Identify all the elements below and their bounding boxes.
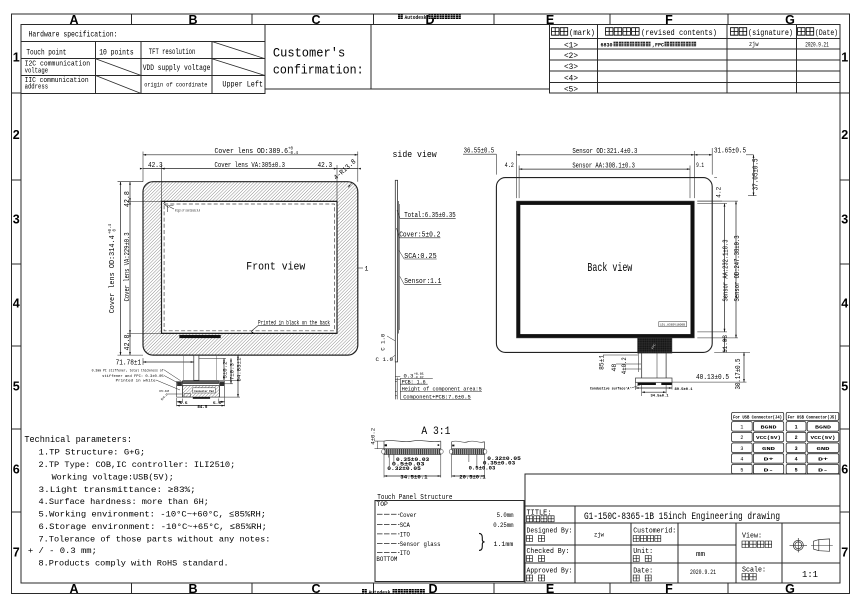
svg-text:2: 2 (13, 128, 20, 142)
svg-text:(mark): (mark) (569, 28, 595, 38)
svg-text:Printed in white: Printed in white (116, 378, 157, 383)
svg-text:30.17±0.5: 30.17±0.5 (735, 359, 743, 390)
svg-text:origin of coordinate: origin of coordinate (144, 81, 207, 89)
svg-text:71.78±1: 71.78±1 (116, 360, 142, 368)
svg-text:C: C (311, 582, 320, 596)
svg-text:2: 2 (740, 435, 743, 441)
svg-text:G: G (785, 582, 795, 596)
svg-text:<3>: <3> (564, 62, 578, 72)
svg-text:89.5±0.1: 89.5±0.1 (675, 388, 694, 392)
svg-text:VDD supply voltage: VDD supply voltage (143, 65, 211, 73)
svg-text:Cover lens VA:229±0.3: Cover lens VA:229±0.3 (124, 232, 132, 301)
svg-text:(signature): (signature) (748, 28, 793, 38)
svg-text:GND: GND (817, 447, 831, 452)
svg-text:-0.4: -0.4 (288, 152, 299, 156)
svg-text:3.Light transmittance: ≥83%;: 3.Light transmittance: ≥83%; (39, 485, 196, 495)
svg-text:Cover lens VA:305±0.3: Cover lens VA:305±0.3 (215, 162, 286, 170)
svg-text:zjw: zjw (749, 41, 759, 48)
svg-text:Conductive surface'A': Conductive surface'A' (590, 387, 632, 392)
svg-text:0.5±0.03: 0.5±0.03 (469, 465, 496, 471)
svg-text:Autodesk: Autodesk (405, 15, 428, 21)
svg-text:1: 1 (13, 50, 20, 64)
svg-text:5: 5 (795, 467, 798, 473)
svg-text:Sensor:1.1: Sensor:1.1 (404, 278, 441, 286)
svg-text:Customerid:: Customerid: (633, 527, 676, 535)
svg-text:BOTTOM: BOTTOM (376, 556, 397, 563)
svg-text:34.5±0.1: 34.5±0.1 (400, 474, 427, 480)
svg-text:0.3mm PI stiffener, total thic: 0.3mm PI stiffener, total thickness of (92, 368, 165, 373)
svg-text:<1>: <1> (564, 40, 578, 50)
svg-text:5.0mm: 5.0mm (497, 512, 514, 519)
svg-text:5±0.2: 5±0.2 (222, 362, 229, 379)
svg-text:<2>: <2> (564, 51, 578, 61)
svg-text:8.Products comply with RoHS st: 8.Products comply with RoHS standard. (39, 559, 229, 569)
svg-text:4±0.2: 4±0.2 (370, 428, 377, 445)
svg-text:Connector Pad: Connector Pad (194, 389, 214, 393)
svg-text:ITO: ITO (400, 532, 410, 539)
svg-text:side view: side view (393, 149, 437, 160)
svg-text:1: 1 (795, 425, 798, 431)
svg-text:Autodesk: Autodesk (369, 590, 392, 596)
svg-text:Approved By:: Approved By: (527, 568, 573, 576)
svg-text:Hardware specification:: Hardware specification: (29, 30, 118, 40)
svg-text:Working voltage:USB(5V);: Working voltage:USB(5V); (52, 472, 174, 482)
svg-text:9.1: 9.1 (696, 162, 704, 169)
svg-text:4±0.2: 4±0.2 (621, 357, 628, 374)
svg-text:4.2: 4.2 (505, 162, 514, 169)
svg-text:Customer's: Customer's (273, 46, 345, 61)
svg-text:Technical parameters:: Technical parameters: (24, 435, 132, 445)
svg-text:<5>: <5> (564, 84, 578, 94)
svg-text:D: D (428, 582, 437, 596)
svg-text:34.5±0.1: 34.5±0.1 (651, 394, 670, 398)
svg-text:Cover lens OD:314.4: Cover lens OD:314.4 (109, 235, 117, 313)
svg-text:3: 3 (841, 212, 848, 226)
svg-text:zjw: zjw (594, 532, 604, 539)
svg-text:D-: D- (818, 468, 828, 473)
svg-text:For USB Connector(J4): For USB Connector(J4) (733, 415, 782, 420)
svg-text:TFT resolution: TFT resolution (149, 48, 196, 57)
svg-text:0: 0 (114, 228, 118, 234)
svg-text:Upper Left: Upper Left (222, 79, 263, 89)
svg-text:F: F (665, 582, 673, 596)
svg-text:,FPC: ,FPC (652, 42, 664, 48)
svg-text:Sensor OD:247.38±0.3: Sensor OD:247.38±0.3 (734, 236, 742, 302)
svg-text:31.65±0.5: 31.65±0.5 (714, 148, 746, 156)
svg-text:A 3:1: A 3:1 (421, 426, 450, 438)
svg-text:4.Surface hardness: more than: 4.Surface hardness: more than 6H; (39, 497, 209, 507)
svg-text:4: 4 (795, 457, 798, 463)
svg-text:Unit:: Unit: (633, 548, 653, 556)
svg-text:7: 7 (13, 545, 20, 559)
svg-text:VCC(5V): VCC(5V) (756, 436, 781, 441)
svg-text:Back view: Back view (587, 261, 632, 275)
svg-text:1: 1 (740, 425, 743, 431)
svg-text:5.Working environment: -10°C~+: 5.Working environment: -10°C~+60°C, ≤85%… (39, 510, 267, 520)
svg-text:G1-150C-8365-1B 15inch Enginee: G1-150C-8365-1B 15inch Engineering drawi… (584, 511, 780, 523)
svg-text:B: B (188, 582, 197, 596)
svg-text:5: 5 (841, 379, 848, 393)
svg-text:42.3: 42.3 (148, 162, 163, 170)
svg-text:TOP: TOP (376, 501, 388, 508)
svg-text:6: 6 (841, 462, 848, 476)
svg-text:Front view: Front view (246, 261, 305, 273)
svg-text:2: 2 (795, 435, 798, 441)
svg-text:D+: D+ (818, 458, 829, 463)
svg-text:40.13±0.5: 40.13±0.5 (696, 374, 729, 382)
svg-text:4: 4 (13, 296, 20, 310)
svg-text:D+: D+ (764, 458, 775, 463)
svg-text:VCC(5V): VCC(5V) (811, 436, 836, 441)
svg-text:2.TP Type: COB,IC controller:: 2.TP Type: COB,IC controller: ILI2510; (39, 460, 236, 470)
svg-text:6830: 6830 (601, 42, 616, 48)
svg-text:Sensor AA:232.1±0.3: Sensor AA:232.1±0.3 (723, 240, 731, 302)
svg-text:C 1.0: C 1.0 (376, 356, 394, 363)
svg-text:Sensor glass: Sensor glass (400, 541, 441, 548)
svg-text:84.5: 84.5 (197, 406, 207, 410)
svg-text:Total:6.35±0.35: Total:6.35±0.35 (404, 212, 456, 220)
svg-text:5: 5 (740, 467, 743, 473)
svg-text:0rigin of coordinate:0,0: 0rigin of coordinate:0,0 (175, 209, 200, 214)
svg-text:4: 4 (841, 296, 848, 310)
svg-text:6: 6 (13, 462, 20, 476)
svg-text:For USB Connector(J5): For USB Connector(J5) (788, 415, 837, 420)
svg-text:BGND: BGND (815, 426, 832, 431)
svg-text:6.Storage environment: -10°C~+: 6.Storage environment: -10°C~+65°C, ≤85%… (39, 522, 268, 532)
svg-text:Cover:5±0.2: Cover:5±0.2 (399, 232, 440, 240)
svg-text:FPC-60P: FPC-60P (159, 390, 169, 393)
svg-text:BGND: BGND (761, 426, 778, 431)
svg-text:(Date): (Date) (815, 28, 838, 38)
svg-text:Cover lens OD:389.6: Cover lens OD:389.6 (215, 148, 289, 156)
svg-text:15L.8365V1600B: 15L.8365V1600B (660, 324, 685, 327)
svg-text:PCB: 1.6: PCB: 1.6 (402, 379, 426, 385)
svg-text:GND: GND (762, 447, 776, 452)
svg-text:(revised contents): (revised contents) (641, 28, 717, 38)
svg-text:<4>: <4> (564, 73, 578, 83)
svg-text:2020.9.21: 2020.9.21 (805, 42, 829, 49)
svg-text:mm: mm (696, 551, 705, 559)
svg-text:SCA:0.25: SCA:0.25 (404, 253, 437, 261)
svg-text:D-: D- (764, 468, 774, 473)
svg-text:3: 3 (13, 212, 20, 226)
svg-text:5: 5 (13, 379, 20, 393)
svg-text:Sensor OD:321.4±0.3: Sensor OD:321.4±0.3 (572, 148, 637, 156)
svg-text:1:1: 1:1 (802, 570, 818, 580)
svg-text:10 points: 10 points (99, 47, 134, 57)
svg-text:Sensor AA:308.1±0.3: Sensor AA:308.1±0.3 (572, 163, 635, 171)
svg-text:42.8: 42.8 (124, 335, 132, 351)
svg-text:0.25mm: 0.25mm (493, 522, 513, 529)
svg-text:ITO: ITO (400, 550, 410, 557)
svg-text:+0.4: +0.4 (109, 223, 113, 234)
svg-text:voltage: voltage (25, 67, 49, 75)
svg-text:4: 4 (740, 457, 743, 463)
svg-text:7: 7 (841, 545, 848, 559)
svg-text:confirmation:: confirmation: (273, 63, 364, 78)
svg-text:54.83±1: 54.83±1 (236, 357, 243, 382)
svg-text:7±0.3: 7±0.3 (229, 363, 236, 380)
svg-text:42.8: 42.8 (124, 191, 132, 207)
svg-text:11.08: 11.08 (722, 335, 729, 353)
svg-text:3: 3 (740, 446, 743, 452)
svg-text:Cover: Cover (400, 512, 417, 519)
svg-text:1: 1 (841, 50, 848, 64)
svg-text:48: 48 (611, 363, 618, 371)
svg-text:0.32±0.05: 0.32±0.05 (387, 466, 421, 472)
svg-text:4.2: 4.2 (716, 187, 723, 198)
svg-text:Touch point: Touch point (26, 47, 66, 57)
svg-text:+ / - 0.3 mm;: + / - 0.3 mm; (28, 546, 97, 556)
svg-text:Checked By:: Checked By: (527, 548, 570, 556)
svg-text:SCA: SCA (400, 522, 410, 529)
svg-text:View:: View: (742, 533, 762, 541)
svg-text:7.Tolerance of those parts wit: 7.Tolerance of those parts without any n… (39, 534, 271, 544)
svg-text:address: address (25, 84, 48, 92)
svg-text:2020.9.21: 2020.9.21 (690, 569, 716, 576)
svg-text:1.TP Structure: G+G;: 1.TP Structure: G+G; (39, 448, 146, 458)
svg-text:1.1mm: 1.1mm (494, 541, 514, 548)
svg-text:E: E (546, 582, 554, 596)
svg-text:1: 1 (365, 266, 369, 273)
svg-text:Date:: Date: (633, 568, 653, 576)
svg-text:85±1: 85±1 (598, 354, 605, 369)
svg-text:3: 3 (795, 446, 798, 452)
svg-text:Designed By:: Designed By: (527, 527, 573, 535)
svg-text:42.3: 42.3 (318, 162, 333, 170)
svg-text:C 1.0: C 1.0 (380, 334, 387, 351)
svg-text:TITLE:: TITLE: (527, 510, 552, 518)
svg-text:20.5±0.1: 20.5±0.1 (459, 474, 485, 480)
svg-text:A: A (69, 582, 78, 596)
svg-text:2: 2 (841, 128, 848, 142)
